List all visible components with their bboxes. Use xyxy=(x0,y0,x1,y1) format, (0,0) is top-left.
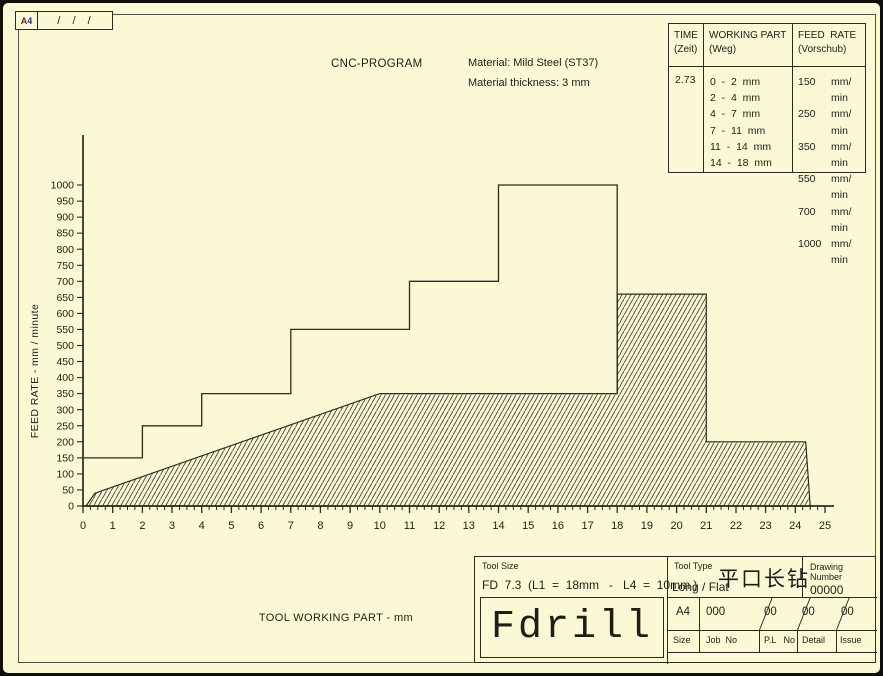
size-value: A4 xyxy=(676,606,690,618)
title-block-divider xyxy=(797,630,798,652)
pl-no-label: P.L No xyxy=(764,635,795,645)
feed-rate-table: TIME (Zeit) WORKING PART (Weg) FEED RATE… xyxy=(668,23,866,173)
detail-label: Detail xyxy=(802,635,825,645)
issue-value: 00 xyxy=(841,606,854,618)
title-block-divider xyxy=(667,557,668,664)
chart-title: CNC-PROGRAM xyxy=(331,58,422,70)
tool-type-label: Tool Type xyxy=(674,561,712,571)
col-header-working-part: WORKING PART (Weg) xyxy=(709,29,786,57)
tool-type-chinese: 平口长钻 xyxy=(718,563,810,593)
tool-name-box: Fdrill xyxy=(480,597,664,658)
col-header-time: TIME (Zeit) xyxy=(674,29,698,57)
tool-size-value: FD 7.3 (L1 = 18mm - L4 = 10mm ) xyxy=(482,578,697,592)
title-block-divider xyxy=(836,630,837,652)
time-value: 2.73 xyxy=(675,74,695,86)
table-row: 550mm/ min xyxy=(798,171,865,203)
table-divider xyxy=(669,66,865,67)
drawing-number-value: 00000 xyxy=(810,583,843,597)
tool-name: Fdrill xyxy=(491,605,653,650)
material-line: Material: Mild Steel (ST37) xyxy=(468,57,598,69)
title-block-divider xyxy=(699,597,700,652)
table-row: 4 - 7 mm xyxy=(710,106,772,122)
x-axis-label: TOOL WORKING PART - mm xyxy=(259,612,413,624)
table-row: 700mm/ min xyxy=(798,204,865,236)
working-part-column: 0 - 2 mm 2 - 4 mm 4 - 7 mm 7 - 11 mm 11 … xyxy=(710,74,772,171)
format-digit: 4 xyxy=(27,16,32,26)
table-row: 250mm/ min xyxy=(798,106,865,138)
title-block-divider xyxy=(667,652,877,653)
table-row: 11 - 14 mm xyxy=(710,139,772,155)
table-row: 7 - 11 mm xyxy=(710,123,772,139)
job-no-label: Job No xyxy=(706,635,737,645)
pl-no-value: 00 xyxy=(764,606,777,618)
table-row: 150mm/ min xyxy=(798,74,865,106)
revision-marks-box: / / / xyxy=(37,11,113,30)
table-row: 1000mm/ min xyxy=(798,236,865,268)
material-thickness-line: Material thickness: 3 mm xyxy=(468,77,590,89)
table-divider xyxy=(703,24,704,172)
y-axis-label: FEED RATE - mm / minute xyxy=(29,304,41,438)
feed-rate-column: 150mm/ min 250mm/ min 350mm/ min 550mm/ … xyxy=(798,74,865,268)
table-divider xyxy=(792,24,793,172)
paper-sheet: A4 / / / CNC-PROGRAM Material: Mild Stee… xyxy=(3,3,880,673)
size-label: Size xyxy=(673,635,691,645)
title-block-divider xyxy=(759,630,760,652)
cnc-drawing-sheet: A4 / / / CNC-PROGRAM Material: Mild Stee… xyxy=(0,0,883,676)
drawing-number-label: Drawing Number xyxy=(810,562,875,582)
table-row: 350mm/ min xyxy=(798,139,865,171)
job-no-value: 000 xyxy=(706,606,725,618)
table-row: 2 - 4 mm xyxy=(710,90,772,106)
tool-size-label: Tool Size xyxy=(482,561,519,571)
sheet-format-box: A4 xyxy=(15,11,38,30)
col-header-feed-rate: FEED RATE (Vorschub) xyxy=(798,29,856,57)
detail-value: 00 xyxy=(802,606,815,618)
table-row: 14 - 18 mm xyxy=(710,155,772,171)
issue-label: Issue xyxy=(840,635,862,645)
table-row: 0 - 2 mm xyxy=(710,74,772,90)
